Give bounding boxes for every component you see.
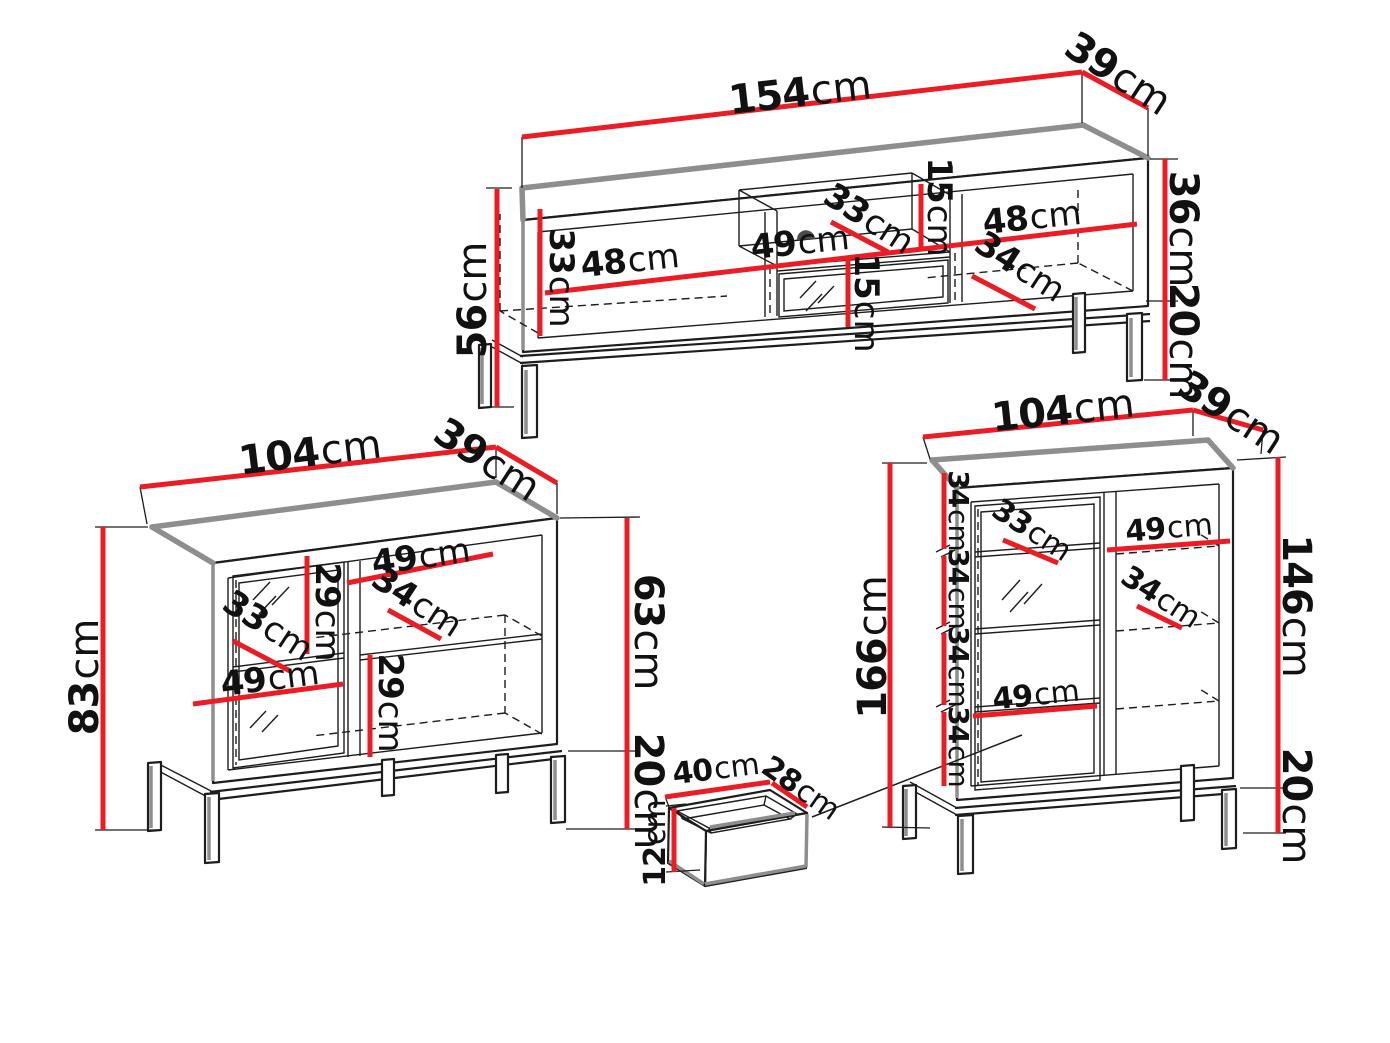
tv-stand: 154cm 39cm 56cm 33cm 48cm 49cm 33cm 15cm… <box>450 23 1206 438</box>
dim-label-tv-niche-height: 15cm <box>919 157 959 256</box>
dim-label-sb-body-height: 63cm <box>625 574 671 691</box>
sideboard-leg <box>551 756 565 823</box>
sideboard: 104cm 39cm 83cm 49cm 29cm 33cm 34cm 49cm… <box>62 409 671 863</box>
dim-label-tv-interior-height: 33cm <box>541 228 581 327</box>
sideboard-leg <box>496 754 508 793</box>
dim-label-dc-body-height: 146cm <box>1273 534 1319 677</box>
dim-label-dc-shelf-spacing-1: 34cm <box>943 470 976 552</box>
furniture-dimension-diagram: 154cm 39cm 56cm 33cm 48cm 49cm 33cm 15cm… <box>0 0 1390 1043</box>
dim-label-tv-lower-height: 15cm <box>846 253 886 352</box>
dim-label-dc-width: 104cm <box>989 381 1136 442</box>
dim-label-dc-shelf-spacing-4: 34cm <box>943 706 976 788</box>
drawer-body <box>668 790 807 886</box>
sideboard-leg <box>205 793 219 863</box>
display-cabinet-leg <box>1222 789 1236 849</box>
dim-label-tv-body-height: 36cm <box>1160 171 1206 288</box>
dim-label-tv-total-height: 56cm <box>450 242 496 359</box>
dim-label-sb-total-height: 83cm <box>62 619 108 736</box>
dim-label-drawer-height: 12cm <box>638 799 673 886</box>
dim-label-dc-shelf-spacing-3: 34cm <box>943 626 976 708</box>
dim-label-dc-leg-height: 20cm <box>1273 748 1319 865</box>
display-cabinet: 104cm 39cm 166cm 34cm 34cm 34cm 34cm 33c… <box>812 362 1319 874</box>
dim-label-sb-width: 104cm <box>236 421 384 484</box>
sideboard-body <box>148 482 565 863</box>
sideboard-leg <box>382 759 394 796</box>
dim-label-dc-shelf-spacing-2: 34cm <box>943 548 976 630</box>
display-cabinet-leg <box>1181 765 1194 821</box>
dim-label-dc-total-height: 166cm <box>850 575 896 718</box>
dim-label-sb-lower-height: 29cm <box>370 653 410 752</box>
dim-label-tv-width: 154cm <box>726 62 874 124</box>
